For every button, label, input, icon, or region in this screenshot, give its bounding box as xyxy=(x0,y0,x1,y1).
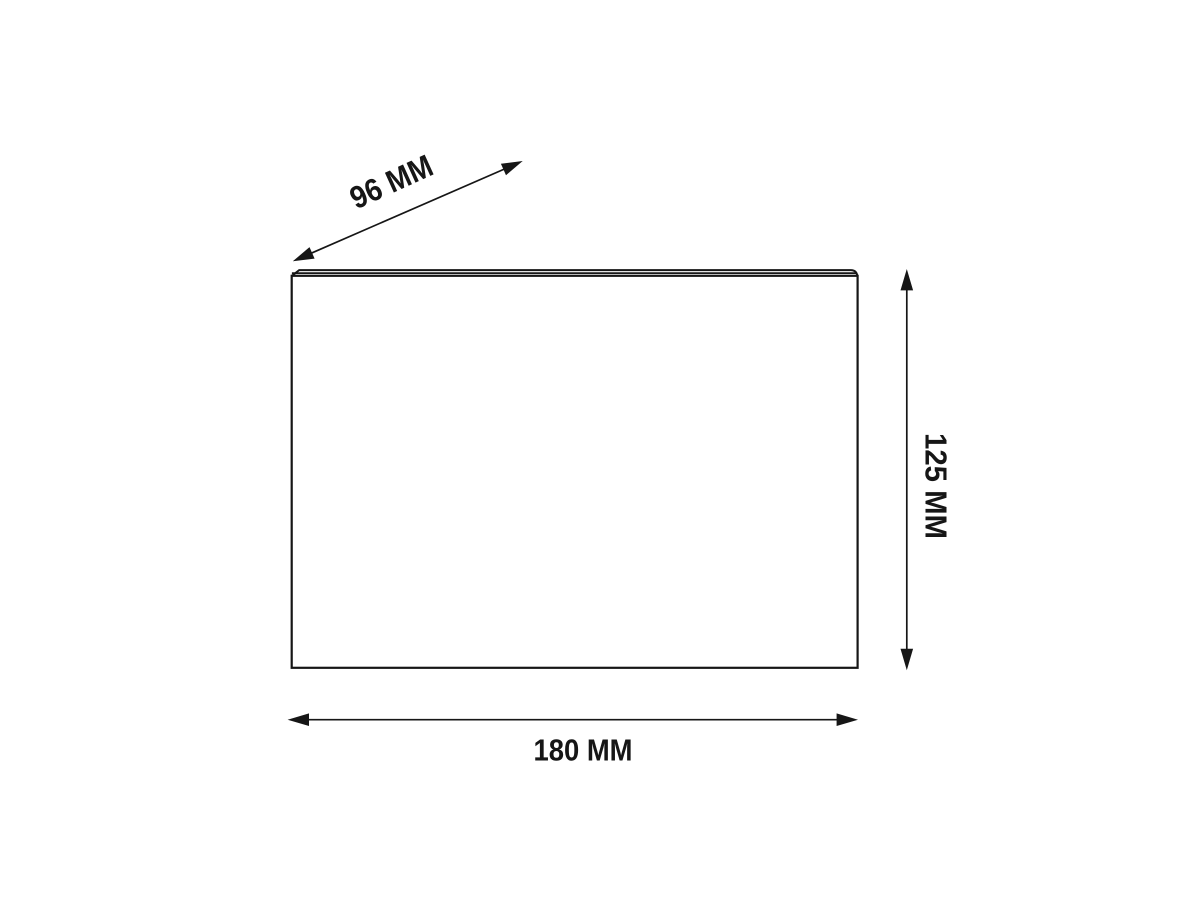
svg-text:96 MM: 96 MM xyxy=(344,147,438,216)
svg-text:180 MM: 180 MM xyxy=(534,732,633,767)
svg-text:125 MM: 125 MM xyxy=(919,433,954,539)
